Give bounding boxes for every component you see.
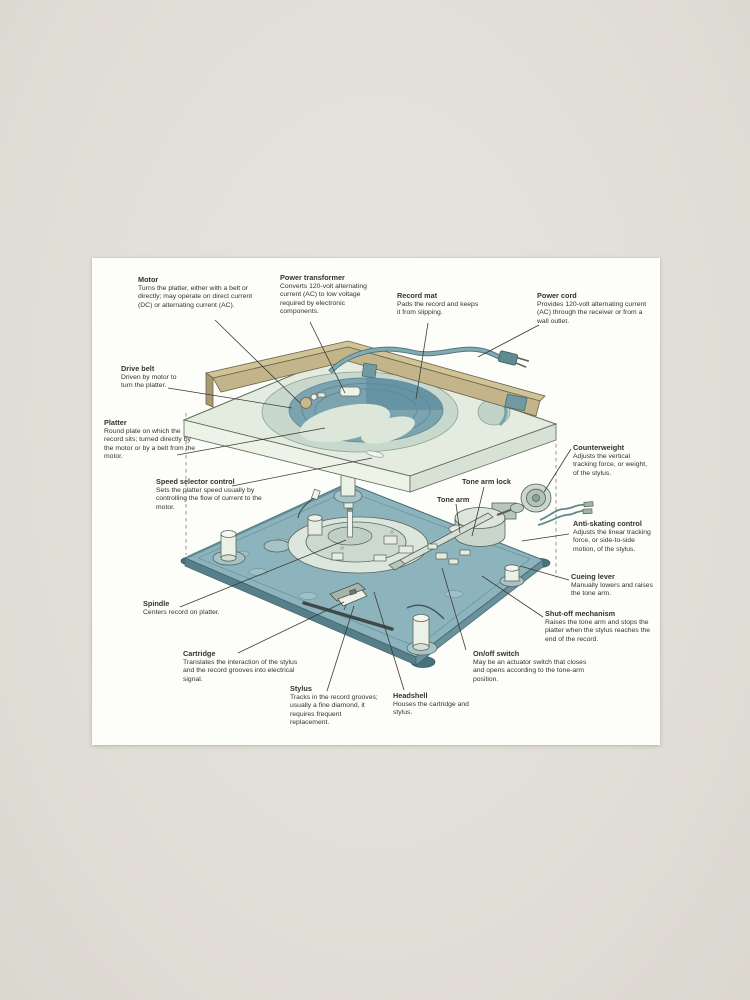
label-counterweight-desc: Adjusts the vertical tracking force, or …	[573, 453, 653, 478]
label-spindle-desc: Centers record on platter.	[143, 609, 253, 617]
label-headshell: Headshell Houses the cartridge and stylu…	[393, 691, 478, 718]
label-counterweight-title: Counterweight	[573, 443, 653, 452]
label-power-cord-desc: Provides 120-volt alternating current (A…	[537, 301, 655, 326]
label-speed-selector-control: Speed selector control Sets the platter …	[156, 477, 264, 512]
label-on-off-title: On/off switch	[473, 649, 591, 658]
label-platter-title: Platter	[104, 418, 196, 427]
label-cueing-lever: Cueing lever Manually lowers and raises …	[571, 572, 656, 599]
label-cueing-lever-title: Cueing lever	[571, 572, 656, 581]
photo-of-print: { "scene": { "type": "photographic print…	[0, 0, 750, 1000]
label-drive-belt-title: Drive belt	[121, 364, 187, 373]
label-speed-selector-desc: Sets the platter speed usually by contro…	[156, 487, 264, 512]
motor-pulley	[301, 398, 312, 409]
label-counterweight: Counterweight Adjusts the vertical track…	[573, 443, 653, 478]
label-cueing-lever-desc: Manually lowers and raises the tone arm.	[571, 582, 656, 599]
label-power-transformer-title: Power transformer	[280, 273, 375, 282]
label-drive-belt: Drive belt Driven by motor to turn the p…	[121, 364, 187, 391]
label-power-cord: Power cord Provides 120-volt alternating…	[537, 291, 655, 326]
counterweight-graphic	[511, 484, 552, 513]
label-drive-belt-desc: Driven by motor to turn the platter.	[121, 374, 187, 391]
label-spindle-title: Spindle	[143, 599, 253, 608]
diagram-print-paper: Motor Turns the platter, either with a b…	[92, 258, 660, 745]
label-motor-desc: Turns the platter, either with a belt or…	[138, 285, 263, 310]
label-shut-off-title: Shut-off mechanism	[545, 609, 655, 618]
label-anti-skating-control: Anti-skating control Adjusts the linear …	[573, 519, 658, 554]
label-motor: Motor Turns the platter, either with a b…	[138, 275, 263, 310]
label-tone-arm: Tone arm	[437, 495, 497, 504]
hinge-clip	[362, 363, 377, 378]
spindle-shaft	[348, 510, 353, 537]
label-stylus: Stylus Tracks in the record grooves; usu…	[290, 684, 378, 728]
label-on-off-desc: May be an actuator switch that closes an…	[473, 659, 591, 684]
label-record-mat-title: Record mat	[397, 291, 482, 300]
leader-counterweight	[544, 449, 571, 492]
label-on-off-switch: On/off switch May be an actuator switch …	[473, 649, 591, 684]
label-tone-arm-lock-title: Tone arm lock	[462, 477, 542, 486]
leader-anti-skating	[522, 534, 569, 541]
rca-plug	[583, 509, 592, 514]
label-anti-skating-desc: Adjusts the linear tracking force, or si…	[573, 529, 658, 554]
label-platter-desc: Round plate on which the record sits; tu…	[104, 428, 196, 462]
label-platter: Platter Round plate on which the record …	[104, 418, 196, 462]
label-tone-arm-title: Tone arm	[437, 495, 497, 504]
label-stylus-title: Stylus	[290, 684, 378, 693]
label-headshell-desc: Houses the cartridge and stylus.	[393, 701, 478, 718]
label-cartridge-desc: Translates the interaction of the stylus…	[183, 659, 301, 684]
label-power-transformer-desc: Converts 120-volt alternating current (A…	[280, 283, 375, 317]
label-record-mat-desc: Pads the record and keeps it from slippi…	[397, 301, 482, 318]
label-record-mat: Record mat Pads the record and keeps it …	[397, 291, 482, 318]
label-shut-off-mechanism: Shut-off mechanism Raises the tone arm a…	[545, 609, 655, 644]
label-cartridge-title: Cartridge	[183, 649, 301, 658]
label-headshell-title: Headshell	[393, 691, 478, 700]
label-speed-selector-title: Speed selector control	[156, 477, 264, 486]
label-motor-title: Motor	[138, 275, 263, 284]
label-power-transformer: Power transformer Converts 120-volt alte…	[280, 273, 375, 317]
label-power-cord-title: Power cord	[537, 291, 655, 300]
label-tone-arm-lock: Tone arm lock	[462, 477, 542, 486]
power-plug	[498, 350, 530, 368]
label-spindle: Spindle Centers record on platter.	[143, 599, 253, 617]
label-cartridge: Cartridge Translates the interaction of …	[183, 649, 301, 684]
rca-plug	[584, 502, 593, 507]
label-shut-off-desc: Raises the tone arm and stops the platte…	[545, 619, 655, 644]
label-stylus-desc: Tracks in the record grooves; usually a …	[290, 694, 378, 728]
label-anti-skating-title: Anti-skating control	[573, 519, 658, 528]
cabinet-wall-left-cap	[206, 373, 213, 407]
